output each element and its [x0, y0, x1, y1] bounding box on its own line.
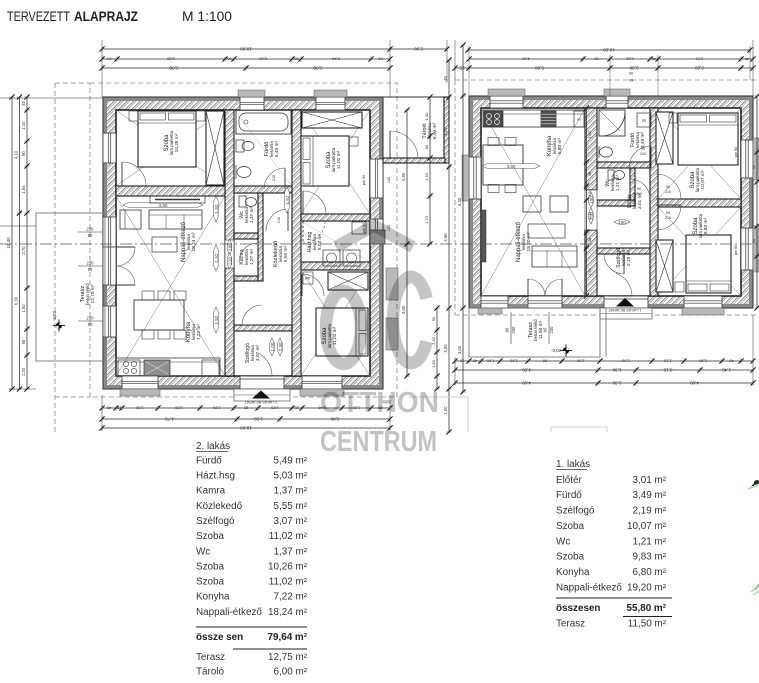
- svg-text:45: 45: [21, 101, 26, 106]
- svg-text:4,00: 4,00: [521, 56, 530, 61]
- svg-text:48: 48: [587, 237, 592, 242]
- svg-text:3,80: 3,80: [166, 56, 175, 61]
- svg-text:4,96: 4,96: [443, 233, 448, 242]
- svg-text:kerámia: kerámia: [244, 207, 249, 223]
- svg-text:1,00: 1,00: [587, 211, 592, 220]
- svg-text:1,37 m²: 1,37 m²: [249, 206, 255, 223]
- svg-text:90: 90: [431, 316, 436, 321]
- svg-text:Szélfogó: Szélfogó: [196, 516, 235, 527]
- svg-text:kerámia: kerámia: [552, 138, 557, 154]
- svg-text:1,15: 1,15: [663, 358, 672, 363]
- svg-text:10,40: 10,40: [6, 237, 11, 249]
- svg-text:80: 80: [424, 144, 429, 149]
- svg-text:2,44: 2,44: [331, 56, 340, 61]
- svg-text:Wc: Wc: [196, 546, 210, 557]
- svg-text:90: 90: [542, 358, 547, 363]
- svg-text:3,00: 3,00: [443, 344, 448, 353]
- svg-text:5,03 m²: 5,03 m²: [274, 471, 308, 482]
- svg-text:15: 15: [107, 56, 112, 61]
- svg-text:1,21 m²: 1,21 m²: [633, 536, 667, 547]
- svg-text:Nappali-étkező: Nappali-étkező: [556, 582, 622, 593]
- svg-text:45: 45: [472, 358, 477, 363]
- svg-text:beton térkő: beton térkő: [533, 318, 538, 341]
- svg-text:11,50 m²: 11,50 m²: [628, 619, 667, 630]
- svg-text:kerámia: kerámia: [250, 345, 255, 361]
- svg-text:210: 210: [227, 257, 232, 265]
- svg-text:5,00: 5,00: [169, 65, 178, 70]
- svg-text:90: 90: [21, 151, 26, 156]
- svg-text:kerámia: kerámia: [269, 141, 274, 157]
- svg-text:90: 90: [21, 339, 26, 344]
- svg-text:11,02 m²: 11,02 m²: [336, 150, 342, 169]
- svg-text:2,00: 2,00: [629, 65, 638, 70]
- svg-text:210: 210: [272, 175, 276, 181]
- svg-text:1,52: 1,52: [214, 253, 219, 262]
- svg-text:11,02 m²: 11,02 m²: [269, 577, 308, 588]
- svg-text:65: 65: [378, 56, 383, 61]
- svg-text:1,52: 1,52: [214, 204, 219, 213]
- svg-text:1,50: 1,50: [621, 358, 630, 363]
- svg-text:90: 90: [505, 327, 510, 332]
- svg-text:90: 90: [88, 322, 93, 327]
- svg-text:11,02 m²: 11,02 m²: [269, 531, 308, 542]
- svg-text:48: 48: [651, 56, 656, 61]
- svg-text:lam.parketta: lam.parketta: [698, 213, 703, 238]
- svg-text:1,20: 1,20: [21, 367, 26, 376]
- svg-text:1,50: 1,50: [443, 406, 448, 415]
- svg-text:Konyha: Konyha: [556, 567, 590, 578]
- svg-text:30: 30: [594, 56, 599, 61]
- svg-text:10,07 m²: 10,07 m²: [627, 521, 667, 532]
- svg-text:6,80 m²: 6,80 m²: [557, 137, 563, 154]
- svg-text:4,90: 4,90: [401, 172, 406, 181]
- svg-text:2,70: 2,70: [21, 246, 26, 255]
- svg-text:CENTRUM: CENTRUM: [320, 426, 437, 458]
- svg-text:Szoba: Szoba: [196, 531, 225, 542]
- svg-text:6,00 m²: 6,00 m²: [432, 122, 438, 139]
- svg-text:4,90: 4,90: [522, 367, 531, 372]
- svg-text:90: 90: [751, 164, 756, 169]
- svg-text:6,30: 6,30: [14, 296, 19, 305]
- svg-text:1,34: 1,34: [587, 188, 592, 197]
- svg-text:230: 230: [511, 326, 516, 334]
- svg-text:230: 230: [87, 227, 95, 232]
- svg-text:5,03 m²: 5,03 m²: [317, 233, 323, 250]
- svg-text:3,00: 3,00: [457, 345, 462, 354]
- svg-text:Konyha: Konyha: [196, 592, 230, 603]
- svg-text:3,10: 3,10: [663, 367, 672, 372]
- svg-text:90: 90: [628, 71, 633, 76]
- svg-text:1,45: 1,45: [722, 367, 731, 372]
- svg-text:lam.parketta: lam.parketta: [169, 130, 174, 155]
- svg-text:1,30: 1,30: [612, 367, 621, 372]
- svg-text:Szoba: Szoba: [556, 552, 585, 563]
- svg-text:3,60: 3,60: [507, 164, 516, 169]
- svg-text:5,49 m²: 5,49 m²: [274, 455, 308, 466]
- svg-text:5,55 m²: 5,55 m²: [283, 245, 289, 262]
- svg-text:Szoba: Szoba: [196, 561, 225, 572]
- svg-text:90: 90: [88, 233, 93, 238]
- svg-text:2,02: 2,02: [258, 56, 267, 61]
- svg-text:55,80 m²: 55,80 m²: [626, 603, 666, 614]
- svg-text:Wc: Wc: [556, 536, 570, 547]
- svg-text:210: 210: [277, 217, 281, 223]
- svg-text:30: 30: [227, 56, 232, 61]
- svg-text:1,50: 1,50: [254, 416, 263, 421]
- svg-text:45: 45: [106, 405, 111, 410]
- svg-text:Terasz: Terasz: [196, 652, 225, 663]
- svg-text:1,92: 1,92: [587, 130, 592, 139]
- svg-text:3,49 m²: 3,49 m²: [633, 490, 667, 501]
- svg-text:3,07 m²: 3,07 m²: [255, 344, 261, 361]
- svg-text:beton térkő: beton térkő: [85, 282, 90, 305]
- svg-text:H: H: [577, 117, 580, 122]
- svg-text:1,00: 1,00: [270, 342, 275, 351]
- svg-text:45: 45: [744, 56, 749, 61]
- svg-text:3,49 m²: 3,49 m²: [640, 131, 646, 148]
- svg-text:1,20: 1,20: [270, 405, 279, 410]
- svg-text:230: 230: [549, 326, 554, 334]
- svg-text:7,22 m²: 7,22 m²: [274, 592, 308, 603]
- svg-text:5,90: 5,90: [535, 65, 544, 70]
- svg-text:1,20: 1,20: [212, 405, 221, 410]
- svg-text:1,52: 1,52: [214, 315, 219, 324]
- svg-text:lam.parketta: lam.parketta: [695, 167, 700, 192]
- svg-text:1,30: 1,30: [135, 405, 144, 410]
- svg-text:kerámia: kerámia: [521, 234, 526, 250]
- svg-text:6,30: 6,30: [457, 197, 462, 206]
- svg-text:5,00: 5,00: [313, 65, 322, 70]
- svg-text:9,83 m²: 9,83 m²: [703, 217, 709, 234]
- svg-text:1,37 m²: 1,37 m²: [249, 248, 255, 265]
- svg-text:35: 35: [294, 405, 299, 410]
- svg-text:2.LAKÁS BEJÁRAT: 2.LAKÁS BEJÁRAT: [244, 400, 278, 404]
- svg-text:2,44: 2,44: [443, 127, 448, 136]
- svg-text:1,20: 1,20: [587, 267, 592, 276]
- svg-text:30: 30: [294, 56, 299, 61]
- svg-text:1,70: 1,70: [424, 215, 429, 224]
- svg-text:1,00: 1,00: [486, 358, 495, 363]
- svg-text:ALAPRAJZ: ALAPRAJZ: [74, 8, 138, 24]
- svg-text:-0,02: -0,02: [551, 348, 562, 353]
- svg-text:1,20: 1,20: [509, 358, 518, 363]
- svg-text:90: 90: [637, 187, 641, 191]
- svg-text:230: 230: [87, 316, 95, 321]
- svg-text:45: 45: [443, 76, 448, 81]
- svg-text:1,37 m²: 1,37 m²: [274, 546, 308, 557]
- svg-text:1,80: 1,80: [431, 359, 436, 368]
- svg-text:10,26 m²: 10,26 m²: [268, 561, 308, 572]
- svg-text:5,49 m²: 5,49 m²: [274, 140, 280, 157]
- svg-text:3,01 m²: 3,01 m²: [637, 192, 643, 209]
- svg-text:2,19 m²: 2,19 m²: [633, 506, 667, 517]
- svg-text:1,30: 1,30: [612, 380, 621, 385]
- svg-text:1,40: 1,40: [424, 172, 429, 181]
- svg-text:1,40: 1,40: [424, 112, 429, 121]
- svg-text:kerámia: kerámia: [632, 193, 637, 209]
- svg-text:kerámia: kerámia: [635, 132, 640, 148]
- svg-text:3,07 m²: 3,07 m²: [274, 516, 308, 527]
- svg-text:6,00 m²: 6,00 m²: [274, 667, 308, 678]
- svg-text:Közlekedő: Közlekedő: [196, 501, 243, 512]
- svg-text:18,24 m²: 18,24 m²: [268, 607, 308, 618]
- svg-text:pm 90: pm 90: [362, 175, 366, 186]
- svg-text:kerámia: kerámia: [312, 234, 317, 250]
- svg-text:45: 45: [729, 358, 734, 363]
- svg-text:10,07 m²: 10,07 m²: [700, 170, 706, 189]
- svg-text:1,21 m²: 1,21 m²: [615, 174, 621, 191]
- svg-text:6,80 m²: 6,80 m²: [633, 567, 667, 578]
- svg-text:1,50: 1,50: [21, 304, 26, 313]
- svg-text:1. lakás: 1. lakás: [556, 459, 590, 470]
- svg-text:össze sen: össze sen: [196, 632, 243, 643]
- svg-text:90: 90: [543, 327, 548, 332]
- svg-text:3,10: 3,10: [695, 56, 704, 61]
- svg-text:PF: PF: [305, 276, 311, 281]
- svg-text:4,00: 4,00: [690, 380, 699, 385]
- svg-text:4,70: 4,70: [165, 416, 174, 421]
- svg-text:90: 90: [751, 238, 756, 243]
- svg-text:3,20: 3,20: [695, 65, 704, 70]
- svg-text:3,01 m²: 3,01 m²: [633, 475, 667, 486]
- svg-text:1,30: 1,30: [576, 358, 585, 363]
- svg-text:pm 90: pm 90: [734, 147, 738, 158]
- svg-text:10,26 m²: 10,26 m²: [174, 133, 180, 152]
- svg-text:12,75 m²: 12,75 m²: [90, 284, 96, 303]
- svg-text:210: 210: [640, 152, 646, 156]
- svg-text:1,82: 1,82: [625, 56, 634, 61]
- svg-text:kerámia: kerámia: [244, 249, 249, 265]
- svg-text:3,80: 3,80: [159, 203, 168, 208]
- svg-text:15: 15: [459, 358, 464, 363]
- svg-text:Tároló: Tároló: [196, 667, 224, 678]
- svg-text:15: 15: [459, 65, 465, 70]
- svg-text:Fürdő: Fürdő: [556, 490, 582, 501]
- svg-text:összesen: összesen: [556, 603, 600, 614]
- svg-text:9,83 m²: 9,83 m²: [633, 552, 667, 563]
- svg-text:12,75 m²: 12,75 m²: [268, 652, 308, 663]
- svg-text:140: 140: [387, 177, 391, 183]
- svg-text:10,20: 10,20: [603, 47, 615, 52]
- svg-text:Terasz: Terasz: [556, 619, 585, 630]
- svg-text:2,30: 2,30: [278, 342, 283, 351]
- svg-text:4,90: 4,90: [522, 380, 531, 385]
- svg-text:Kamra: Kamra: [196, 486, 226, 497]
- svg-text:Fürdő: Fürdő: [196, 455, 222, 466]
- svg-text:Szoba: Szoba: [556, 521, 585, 532]
- svg-text:90: 90: [88, 267, 93, 272]
- svg-text:3,80: 3,80: [401, 305, 406, 314]
- svg-text:1,30: 1,30: [698, 358, 707, 363]
- svg-text:Nappali-étkező: Nappali-étkező: [196, 607, 262, 618]
- svg-text:kerámia: kerámia: [186, 234, 191, 250]
- svg-text:19,20 m²: 19,20 m²: [627, 582, 667, 593]
- svg-text:kerámia: kerámia: [191, 324, 196, 340]
- svg-text:kerámia: kerámia: [278, 246, 283, 262]
- svg-text:TERVEZETT: TERVEZETT: [7, 8, 70, 24]
- svg-text:OTTHON: OTTHON: [320, 387, 439, 419]
- svg-text:1,10: 1,10: [21, 121, 26, 130]
- svg-text:Előtér: Előtér: [556, 475, 583, 486]
- svg-text:85: 85: [243, 405, 248, 410]
- svg-text:48: 48: [587, 171, 592, 176]
- svg-text:1,52: 1,52: [285, 195, 290, 204]
- svg-text:10,00: 10,00: [240, 425, 252, 430]
- svg-text:230: 230: [87, 261, 95, 266]
- svg-text:4,10: 4,10: [14, 150, 19, 159]
- svg-text:19,20 m²: 19,20 m²: [526, 232, 532, 251]
- svg-text:2,00: 2,00: [414, 46, 423, 51]
- svg-text:Szoba: Szoba: [196, 577, 225, 588]
- svg-text:90: 90: [666, 211, 670, 215]
- svg-text:18,24 m²: 18,24 m²: [191, 232, 197, 251]
- svg-text:7,22 m²: 7,22 m²: [196, 323, 202, 340]
- svg-text:2. lakás: 2. lakás: [196, 441, 230, 452]
- svg-text:1.LAKÁS BEJÁRAT: 1.LAKÁS BEJÁRAT: [608, 308, 642, 312]
- svg-text:1,50: 1,50: [174, 405, 183, 410]
- svg-text:79,64 m²: 79,64 m²: [267, 632, 307, 643]
- svg-text:1,65: 1,65: [21, 185, 26, 194]
- svg-text:Házt.hsg: Házt.hsg: [196, 471, 235, 482]
- svg-text:M: M: [642, 118, 646, 123]
- svg-text:M 1:100: M 1:100: [182, 8, 232, 24]
- svg-text:100: 100: [618, 220, 626, 225]
- svg-text:Szélfogó: Szélfogó: [556, 506, 595, 517]
- svg-text:lam.parketta: lam.parketta: [331, 147, 336, 172]
- svg-text:50: 50: [628, 78, 633, 83]
- svg-text:2,19 m²: 2,19 m²: [626, 249, 632, 266]
- svg-text:pm 90: pm 90: [734, 245, 738, 256]
- svg-text:5,55 m²: 5,55 m²: [274, 501, 308, 512]
- svg-text:-0,02: -0,02: [52, 310, 57, 321]
- svg-text:10,00: 10,00: [240, 46, 252, 51]
- svg-text:1,37 m²: 1,37 m²: [274, 486, 308, 497]
- svg-text:20: 20: [116, 405, 121, 410]
- svg-text:90: 90: [641, 147, 645, 151]
